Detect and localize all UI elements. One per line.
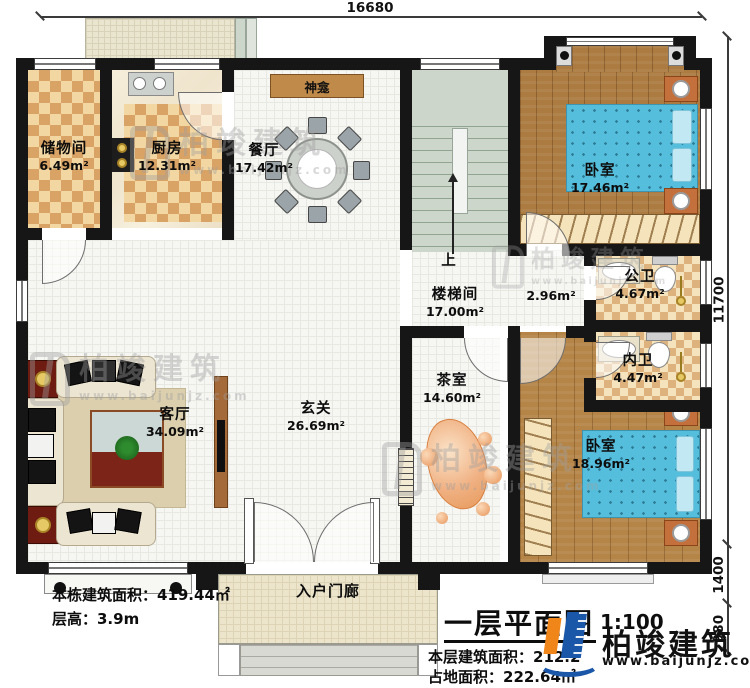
nightstand (664, 188, 698, 214)
sofa-cushion (92, 360, 116, 382)
dim-top-width: 16680 (320, 0, 420, 16)
landing-area-label: 2.96m² (518, 288, 584, 304)
bedroom1-bay-floor (556, 46, 684, 72)
floor-plan-page: { "dims": { "width": "16680", "height": … (0, 0, 750, 688)
sofa-cushion (92, 512, 116, 534)
dim-right-height: 11700 (706, 255, 732, 345)
floor-height-note: 层高：3.9m (52, 608, 139, 629)
room-label-stairwell: 楼梯间17.00m² (400, 286, 510, 320)
pillow (672, 148, 692, 182)
wall (584, 320, 712, 332)
sink-basin (153, 77, 166, 90)
room-label-dining: 餐厅17.42m² (226, 142, 302, 176)
sink-basin (133, 77, 146, 90)
stair-direction-line (452, 182, 454, 254)
window (700, 343, 712, 388)
window (154, 58, 220, 70)
room-label-kitchen: 厨房12.31m² (112, 140, 222, 174)
tea-stool (484, 466, 502, 484)
wall (508, 70, 520, 244)
window (420, 58, 500, 70)
rear-terrace-strip (246, 18, 257, 62)
bay-window (566, 37, 674, 46)
tea-stool (436, 512, 448, 524)
dining-chair (353, 161, 370, 180)
wall (566, 326, 596, 338)
entry-steps (240, 644, 418, 676)
window (48, 562, 188, 574)
room-label-living: 客厅34.09m² (118, 406, 232, 440)
shrine-shelf: 神龛 (270, 74, 364, 98)
stair-railing (452, 128, 468, 214)
wall (508, 244, 526, 256)
nightstand (664, 76, 698, 102)
brand-logo-icon (538, 612, 594, 676)
tea-stool (420, 448, 438, 466)
room-label-porch: 入户门廊 (218, 582, 438, 601)
shrine-label: 神龛 (304, 77, 329, 96)
bay-wall (544, 36, 556, 70)
wall (16, 228, 42, 240)
tea-stool (478, 432, 492, 446)
dim-porch-depth: 1400 (706, 546, 732, 604)
wall (100, 70, 112, 228)
sofa-cushion (28, 460, 56, 484)
total-area-note: 本栋建筑面积：419.44㎡ (52, 584, 230, 605)
wall (222, 70, 234, 92)
room-label-tea-room: 茶室14.60m² (400, 372, 504, 406)
dining-chair (308, 117, 327, 134)
room-label-storage: 储物间6.49m² (28, 140, 100, 174)
window-sill (542, 574, 654, 584)
nightstand (664, 520, 698, 546)
bay-post (668, 46, 684, 66)
lamp (672, 192, 690, 210)
wall (584, 400, 712, 412)
rear-terrace-strip (235, 18, 246, 62)
window (700, 108, 712, 190)
wall (400, 70, 412, 250)
room-label-foyer: 玄关26.69m² (256, 400, 376, 434)
toilet-tank (646, 332, 672, 341)
rear-terrace-floor (85, 18, 235, 62)
wall (562, 244, 700, 256)
room-label-private-bath: 内卫4.47m² (588, 352, 688, 386)
wall (400, 504, 412, 562)
tea-stool (476, 502, 490, 516)
wall (584, 256, 596, 266)
lamp (672, 524, 690, 542)
toilet-tank (652, 256, 678, 265)
sofa-cushion (116, 360, 144, 387)
sofa-cushion (66, 508, 93, 534)
sofa-cushion (26, 434, 54, 458)
wall (508, 326, 520, 338)
bay-post (556, 46, 572, 66)
sofa-cushion (114, 508, 141, 534)
dining-chair (308, 206, 327, 223)
dining-table-top (297, 149, 337, 189)
dim-line-top (40, 16, 702, 18)
window (548, 562, 648, 574)
room-label-bedroom2: 卧室18.96m² (546, 438, 656, 472)
pillow (676, 476, 694, 512)
wall (400, 326, 464, 338)
pillow (676, 436, 694, 472)
room-label-public-bath: 公卫4.67m² (592, 268, 688, 302)
wall (508, 338, 520, 562)
wall (584, 300, 596, 320)
steps-apron (218, 644, 240, 676)
wall (86, 228, 112, 240)
bay-wall (684, 36, 696, 70)
entry-door-post (244, 498, 254, 564)
pillow (672, 110, 692, 144)
window (34, 58, 96, 70)
window (16, 280, 28, 322)
stair-up-label: 上 (436, 252, 462, 270)
room-label-bedroom1: 卧室17.46m² (548, 162, 652, 196)
lamp (672, 80, 690, 98)
brand-url: www.baijunjz.com (602, 654, 750, 669)
sofa-cushion (28, 408, 56, 432)
shoe-cabinet (398, 448, 414, 506)
stair-up-arrow (448, 173, 458, 182)
window (700, 428, 712, 520)
